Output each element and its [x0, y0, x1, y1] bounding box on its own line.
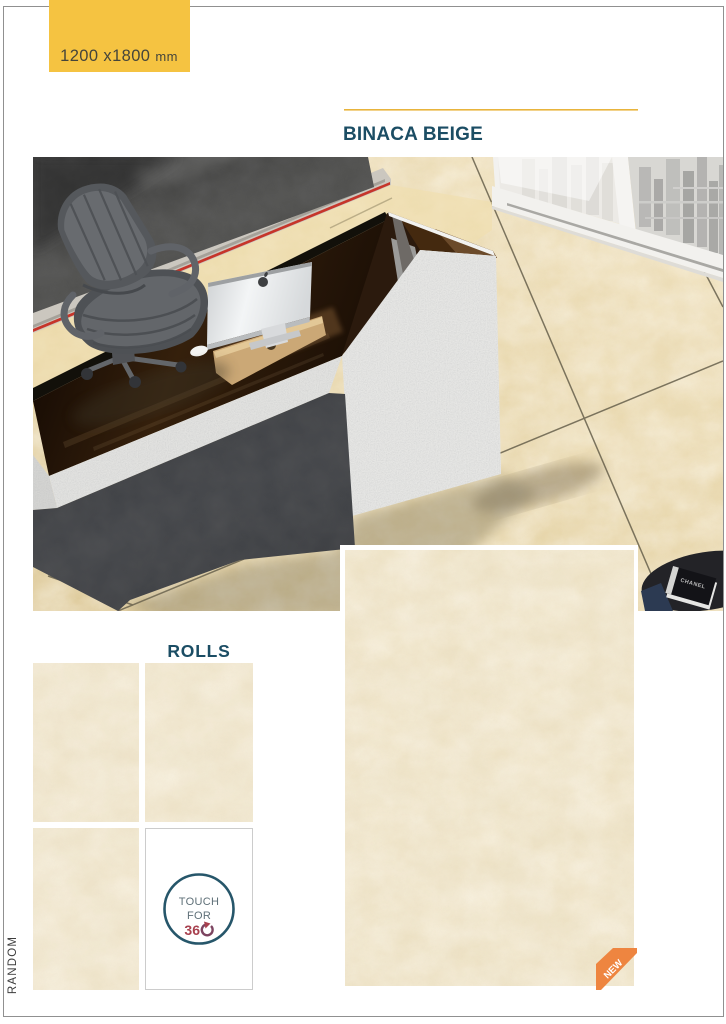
svg-text:FOR: FOR — [187, 910, 211, 922]
svg-text:TOUCH: TOUCH — [179, 896, 219, 908]
svg-text:1200 x1800 mm: 1200 x1800 mm — [60, 47, 178, 65]
svg-text:ROLLS: ROLLS — [167, 641, 230, 661]
svg-text:RANDOM: RANDOM — [7, 936, 19, 994]
svg-text:36: 36 — [184, 922, 200, 938]
svg-text:BINACA BEIGE: BINACA BEIGE — [343, 124, 483, 145]
